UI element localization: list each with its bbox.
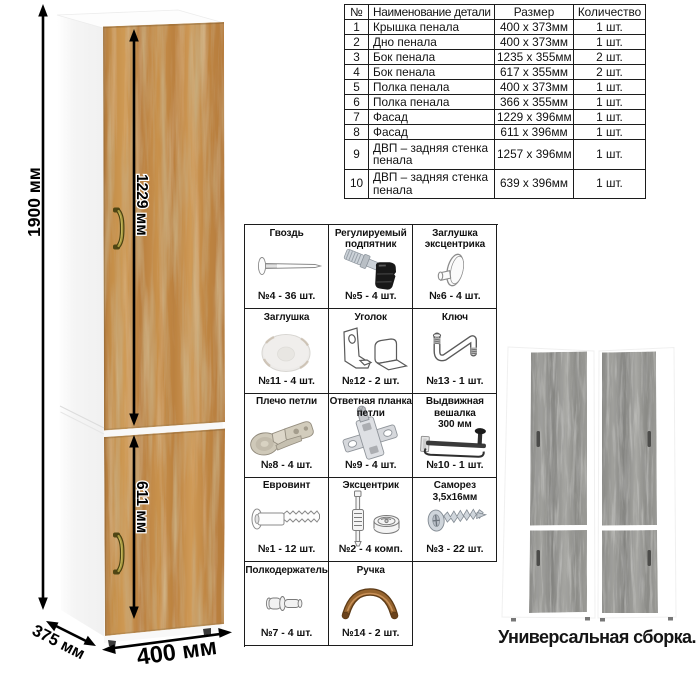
svg-text:1229 мм: 1229 мм	[133, 174, 150, 236]
svg-text:1900 мм: 1900 мм	[24, 167, 44, 237]
svg-text:611 мм: 611 мм	[133, 481, 150, 533]
